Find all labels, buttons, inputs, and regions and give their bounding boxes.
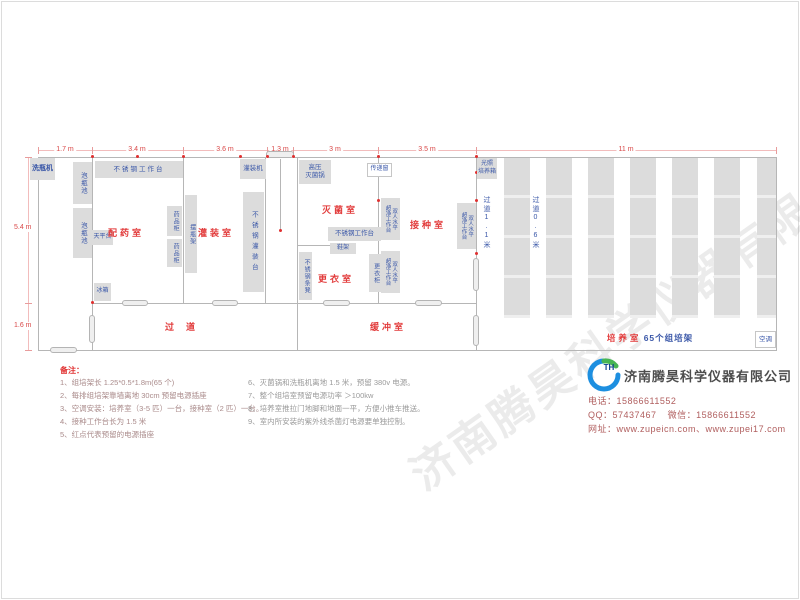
equipment-soak-pool: 泡瓶池 <box>73 162 92 204</box>
company-phone-line: 电话：15866611552 <box>588 394 676 407</box>
wall <box>38 157 777 158</box>
door <box>473 258 479 291</box>
corridor-label-0.6m: 过道0.6米 <box>532 196 539 260</box>
phone-number: 15866611552 <box>617 396 677 406</box>
culture-room-name: 培养室 <box>607 333 642 343</box>
company-name: 济南腾昊科学仪器有限公司 <box>624 366 792 385</box>
dim-tick <box>378 147 379 154</box>
power-socket-dot <box>279 229 282 232</box>
room-label-inoculation: 接种室 <box>410 218 446 231</box>
room-label-changing: 更衣室 <box>318 272 354 285</box>
dim-tick <box>183 147 184 154</box>
dim-tick <box>92 147 93 154</box>
wall <box>776 157 777 351</box>
door <box>50 347 77 353</box>
equipment-bench: 不锈钢条凳 <box>299 252 312 300</box>
dim-tick <box>25 350 32 351</box>
dimension-label: 3.6 m <box>214 146 236 154</box>
equipment-medicine-cabinet: 药品柜 <box>167 239 182 267</box>
equipment-shoe-rack: 鞋架 <box>330 243 356 254</box>
culture-rack <box>504 158 530 318</box>
dimension-label: 3 m <box>327 146 343 154</box>
note-item: 5、红点代表预留的电源插座 <box>60 429 154 440</box>
equipment-soak-pool: 泡瓶池 <box>73 208 92 258</box>
culture-rack <box>546 158 572 318</box>
wall <box>183 157 184 303</box>
power-socket-dot <box>239 155 242 158</box>
door <box>266 151 294 158</box>
culture-rack <box>588 158 614 318</box>
note-item: 8、培养室推拉门地脚和地面一平，方便小推车推送。 <box>248 403 425 414</box>
door <box>212 300 238 306</box>
power-socket-dot <box>182 155 185 158</box>
equipment-clean-bench: 双人水平 超净工作台 <box>381 198 400 240</box>
company-web-line: 网址：www.zupeicn.com、www.zupei17.com <box>588 422 786 435</box>
equipment-pass-window: 传递窗 <box>367 163 392 177</box>
equipment-clean-bench: 双人水平 超净工作台 <box>457 203 476 249</box>
dimension-label: 1.7 m <box>54 146 76 154</box>
equipment-air-conditioner: 空调 <box>755 331 776 348</box>
web-urls: www.zupeicn.com、www.zupei17.com <box>617 424 786 434</box>
corridor-label-1.1m: 过道1.1米 <box>483 196 490 260</box>
equipment-clean-bench: 双人水平 超净工作台 <box>381 251 400 293</box>
wall <box>280 157 281 230</box>
equipment-worktable: 不锈钢工作台 <box>328 227 381 241</box>
wall <box>297 245 330 246</box>
power-socket-dot <box>266 155 269 158</box>
room-label-sterilization: 灭菌室 <box>322 203 358 216</box>
room-label-corridor: 过道 <box>165 320 207 333</box>
culture-rack <box>672 158 698 318</box>
door <box>323 300 350 306</box>
equipment-bottle-washer: 洗瓶机 <box>30 158 55 180</box>
equipment-worktable: 不锈钢工作台 <box>95 161 183 178</box>
culture-rack-count: 65个组培架 <box>644 333 693 343</box>
wechat-number: 15866611552 <box>696 410 756 420</box>
room-label-filling: 灌装室 <box>198 226 234 239</box>
dimension-label: 1.6 m <box>12 322 34 330</box>
company-qq-line: QQ：57437467 微信：15866611552 <box>588 408 756 421</box>
top-dimension-line <box>38 150 777 151</box>
dimension-label: 3.4 m <box>126 146 148 154</box>
power-socket-dot <box>377 199 380 202</box>
room-label-buffer: 缓冲室 <box>370 320 406 333</box>
notes-title: 备注： <box>60 365 84 376</box>
culture-rack <box>757 158 776 318</box>
wall <box>297 157 298 350</box>
door <box>122 300 148 306</box>
power-socket-dot <box>475 252 478 255</box>
power-socket-dot <box>91 301 94 304</box>
note-item: 2、每排组培架靠墙离地 30cm 预留电源插座 <box>60 390 207 401</box>
company-logo-text: TH <box>604 363 615 372</box>
wechat-label: 微信： <box>668 410 697 420</box>
door <box>89 315 95 343</box>
door <box>415 300 442 306</box>
note-item: 4、接种工作台长为 1.5 米 <box>60 416 146 427</box>
note-item: 3、空调安装：培养室（3-5 匹）一台，接种室（2 匹）一台。 <box>60 403 263 414</box>
culture-rack <box>714 158 740 318</box>
dimension-label: 11 m <box>616 146 635 154</box>
dim-tick <box>776 147 777 154</box>
dimension-label: 3.5 m <box>416 146 438 154</box>
qq-label: QQ： <box>588 410 613 420</box>
note-item: 6、灭菌锅和洗瓶机离地 1.5 米，预留 380v 电源。 <box>248 377 415 388</box>
note-item: 9、室内所安装的紫外线杀菌灯电源要单独控制。 <box>248 416 410 427</box>
power-socket-dot <box>475 199 478 202</box>
power-socket-dot <box>91 155 94 158</box>
equipment-fridge: 冰箱 <box>94 283 111 301</box>
room-label-prep: 配药室 <box>108 226 144 239</box>
door <box>473 315 479 346</box>
power-socket-dot <box>377 155 380 158</box>
equipment-filling-table: 不锈钢灌装台 <box>243 192 264 292</box>
dim-tick <box>25 303 32 304</box>
equipment-autoclave: 高压 灭菌锅 <box>299 160 331 184</box>
dimension-label: 5.4 m <box>12 224 34 232</box>
power-socket-dot <box>136 155 139 158</box>
web-label: 网址： <box>588 424 617 434</box>
note-item: 1、组培架长 1.25*0.5*1.8m(65 个) <box>60 377 174 388</box>
power-socket-dot <box>292 155 295 158</box>
equipment-light-incubator: 光照 培养箱 <box>477 158 497 179</box>
culture-rack <box>630 158 656 318</box>
room-label-culture: 培养室 65个组培架 <box>560 332 740 344</box>
dim-tick <box>38 147 39 154</box>
equipment-wardrobe: 更衣柜 <box>369 254 381 292</box>
phone-label: 电话： <box>588 396 617 406</box>
company-logo: TH <box>587 358 621 397</box>
wall <box>38 350 777 351</box>
qq-number: 57437467 <box>613 410 657 420</box>
equipment-bottle-rack: 摆瓶架 <box>185 195 197 273</box>
equipment-medicine-cabinet: 药品柜 <box>167 206 182 236</box>
wall <box>38 157 39 350</box>
equipment-filling-machine: 灌装机 <box>240 159 266 179</box>
note-item: 7、整个组培室预留电源功率 ＞100kw <box>248 390 373 401</box>
floor-plan-page: 济南腾昊科学仪器有限公司 1.7 m 3.4 m 3.6 m 1.3 m 3 m… <box>0 0 800 600</box>
dim-tick <box>476 147 477 154</box>
